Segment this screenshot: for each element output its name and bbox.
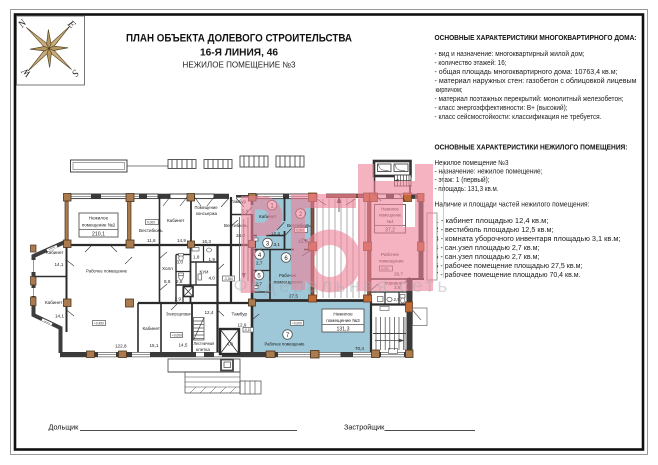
svg-text:КУИ: КУИ [200, 270, 209, 275]
svg-text:2,9: 2,9 [175, 297, 182, 302]
svg-text:ПЛАН ОБЪЕКТА ДОЛЕВОГО СТРОИТЕЛ: ПЛАН ОБЪЕКТА ДОЛЕВОГО СТРОИТЕЛЬСТВА [126, 33, 352, 45]
svg-text:кирпичом;: кирпичом; [436, 87, 463, 94]
svg-text:16,3: 16,3 [202, 239, 211, 244]
svg-text:6 - рабочее помещение площадью: 6 - рабочее помещение площадью 27,5 кв.м… [435, 262, 583, 270]
svg-text:- общая площадь многоквартирно: - общая площадь многоквартирного дома: 1… [435, 68, 618, 76]
svg-text:14,1: 14,1 [55, 314, 64, 319]
svg-text:- класс энергоэффективности: В: - класс энергоэффективности: В+ (высокий… [435, 104, 568, 112]
svg-text:12,9: 12,9 [238, 323, 247, 328]
svg-text:- класс сейсмостойкости: класс: - класс сейсмостойкости: классификация н… [435, 113, 602, 121]
svg-text:Нежилое: Нежилое [89, 216, 109, 221]
svg-text:- количество этажей: 16;: - количество этажей: 16; [435, 59, 507, 67]
svg-text:-0,15: -0,15 [244, 328, 251, 332]
svg-text:3 - комната уборочного инвента: 3 - комната уборочного инвентаря площадь… [435, 235, 621, 243]
svg-text:4,0: 4,0 [209, 276, 216, 281]
svg-text:- площадь: 131,3 кв.м.: - площадь: 131,3 кв.м. [435, 186, 499, 193]
svg-text:Тамбур: Тамбур [232, 312, 248, 317]
svg-text:122,8: 122,8 [115, 344, 127, 349]
svg-text:+0,450: +0,450 [94, 322, 104, 326]
svg-text:1 - кабинет площадью 12,4 кв.м: 1 - кабинет площадью 12,4 кв.м; [435, 217, 549, 225]
svg-text:Электрощитовая: Электрощитовая [166, 312, 191, 317]
svg-text:Кабинет: Кабинет [167, 218, 185, 223]
svg-text:2,7: 2,7 [256, 261, 263, 266]
svg-text:- вид и назначение: многокварт: - вид и назначение: многоквартирный жило… [435, 50, 585, 58]
svg-text:14,5: 14,5 [179, 343, 188, 348]
svg-text:15,1: 15,1 [150, 343, 159, 348]
svg-text:0,000: 0,000 [147, 221, 155, 225]
svg-text:Кабинет: Кабинет [46, 250, 64, 255]
svg-text:210,1: 210,1 [92, 232, 105, 238]
svg-text:- этаж: 1 (первый);: - этаж: 1 (первый); [435, 176, 490, 184]
svg-text:2,5: 2,5 [394, 297, 401, 302]
svg-text:помещение №2: помещение №2 [82, 223, 116, 228]
svg-text:ОСНОВНЫЕ ХАРАКТЕРИСТИКИ МНОГОК: ОСНОВНЫЕ ХАРАКТЕРИСТИКИ МНОГОКВАРТИРНОГО… [435, 33, 637, 42]
svg-text:консьержа: консьержа [196, 211, 217, 216]
svg-text:помещение №3: помещение №3 [326, 318, 360, 323]
svg-text:70,4: 70,4 [355, 346, 364, 351]
svg-text:8,8: 8,8 [164, 279, 171, 284]
svg-text:Кабинет: Кабинет [45, 300, 63, 305]
svg-text:3,1: 3,1 [274, 242, 281, 247]
svg-text:+0,000: +0,000 [292, 322, 302, 326]
svg-text:Вестибюль: Вестибюль [139, 228, 163, 233]
svg-text:16-Я ЛИНИЯ, 46: 16-Я ЛИНИЯ, 46 [200, 48, 278, 59]
svg-text:Федеральная сеть: Федеральная сеть [233, 276, 450, 297]
svg-text:Нежилое помещение №3: Нежилое помещение №3 [435, 160, 509, 167]
svg-text:НЕЖИЛОЕ ПОМЕЩЕНИЕ №3: НЕЖИЛОЕ ПОМЕЩЕНИЕ №3 [183, 60, 296, 70]
svg-text:4 - сан.узел площадью 2,7 кв.м: 4 - сан.узел площадью 2,7 кв.м; [435, 245, 540, 252]
svg-text:12,4: 12,4 [205, 310, 214, 315]
svg-text:клетка: клетка [196, 347, 210, 352]
svg-text:2,8: 2,8 [176, 279, 183, 284]
svg-text:Помещение: Помещение [195, 205, 218, 210]
svg-text:11,6: 11,6 [147, 238, 156, 243]
svg-text:Кабинет: Кабинет [143, 326, 161, 331]
svg-text:- назначение: нежилое помещени: - назначение: нежилое помещение; [435, 169, 543, 176]
svg-text:1,9: 1,9 [209, 257, 216, 262]
svg-text:Лестничная: Лестничная [194, 341, 215, 346]
svg-text:Рабочее помещение: Рабочее помещение [265, 342, 305, 347]
svg-text:14,1: 14,1 [55, 262, 64, 267]
svg-text:Дольщик: Дольщик [49, 423, 80, 432]
svg-text:5 - сан.узел площадью 2,7 кв.м: 5 - сан.узел площадью 2,7 кв.м; [435, 254, 540, 261]
svg-text:Холл: Холл [162, 266, 173, 271]
svg-text:Рабочее помещение: Рабочее помещение [86, 269, 127, 274]
svg-text:ОСНОВНЫЕ ХАРАКТЕРИСТИКИ НЕЖИЛО: ОСНОВНЫЕ ХАРАКТЕРИСТИКИ НЕЖИЛОГО ПОМЕЩЕН… [435, 143, 628, 152]
svg-text:-0,450: -0,450 [224, 277, 233, 281]
svg-text:+0,000: +0,000 [172, 334, 182, 338]
svg-text:131,3: 131,3 [337, 327, 350, 333]
svg-text:Наличие и площади частей нежил: Наличие и площади частей нежилого помеще… [435, 201, 590, 209]
svg-text:1,8: 1,8 [193, 255, 200, 260]
svg-text:7 - рабочее помещение площадью: 7 - рабочее помещение площадью 70,4 кв.м… [435, 271, 581, 279]
svg-text:- материал поэтажных перекрыти: - материал поэтажных перекрытий: монолит… [435, 95, 624, 103]
svg-text:Нежилое: Нежилое [333, 312, 353, 317]
svg-text:14,9: 14,9 [177, 238, 186, 243]
svg-text:Застройщик: Застройщик [344, 423, 385, 432]
svg-text:- материал наружных стен: газо: - материал наружных стен: газобетон с об… [435, 77, 637, 85]
svg-text:3,0: 3,0 [177, 260, 184, 265]
svg-text:4,0: 4,0 [227, 342, 234, 347]
svg-text:2 - вестибюль площадью 12,5 кв: 2 - вестибюль площадью 12,5 кв.м; [435, 226, 554, 234]
